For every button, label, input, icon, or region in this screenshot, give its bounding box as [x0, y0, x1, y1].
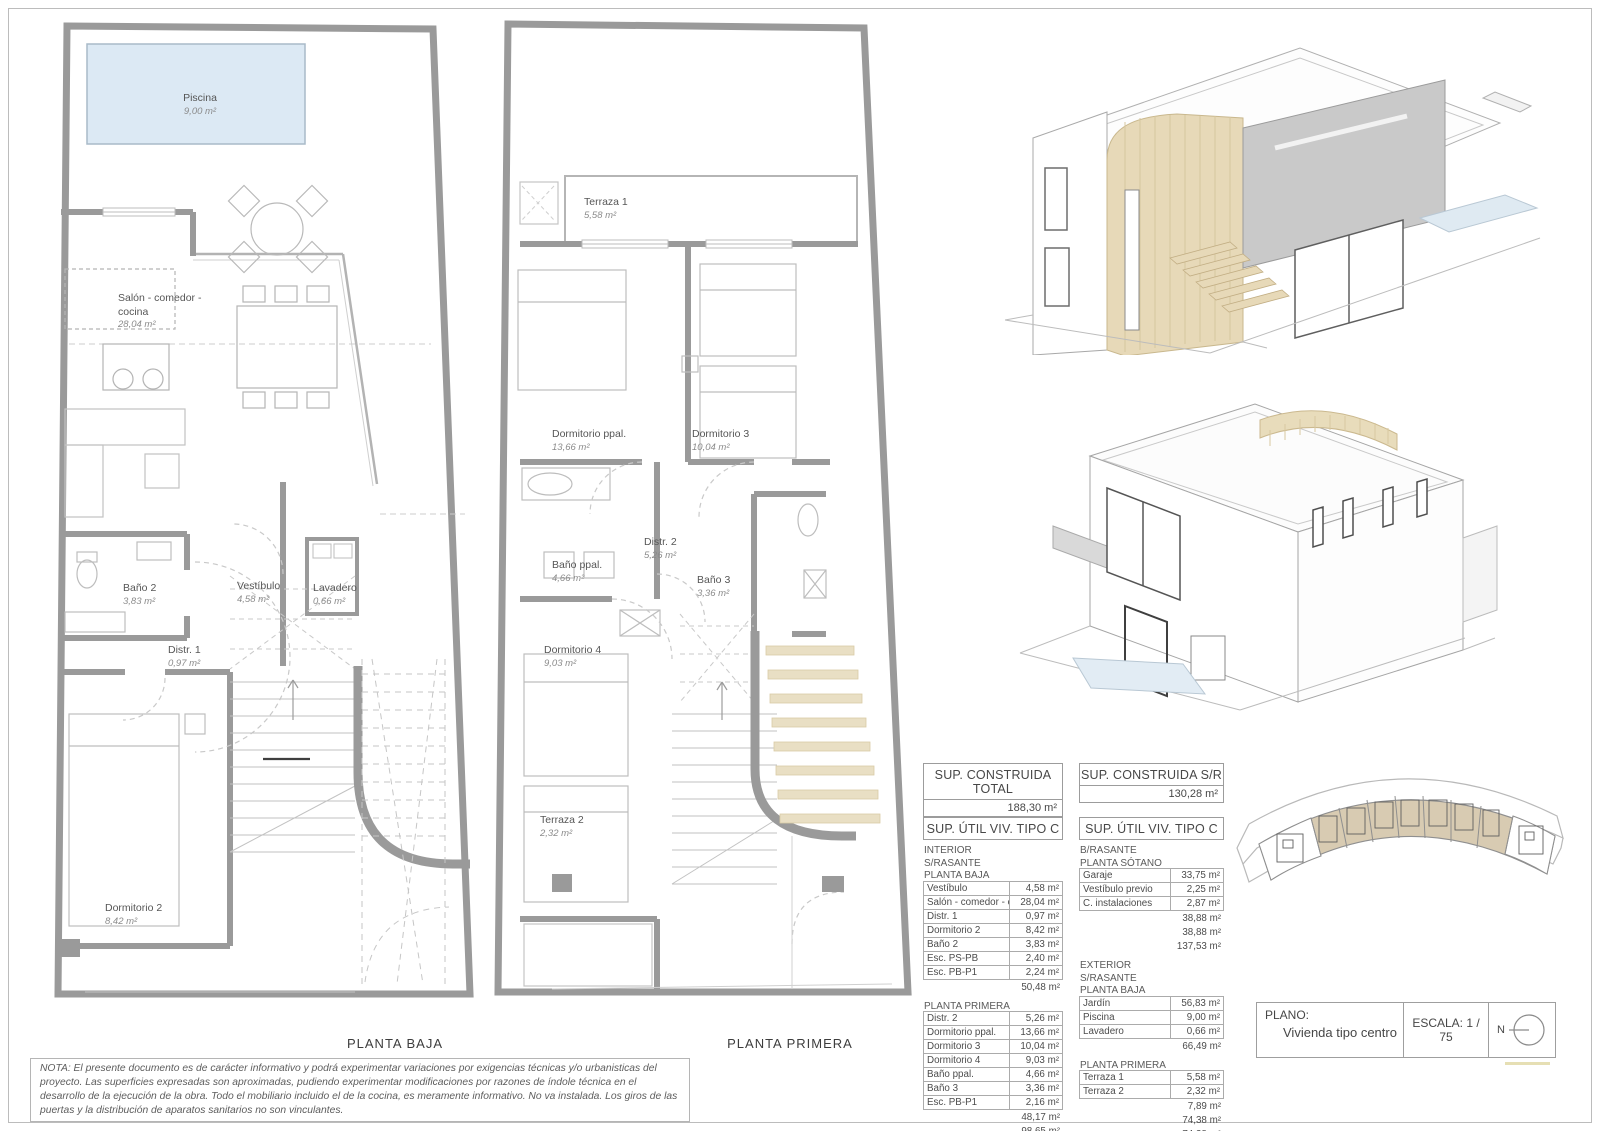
room-label-salon: Salón - comedor - cocina 28,04 m² — [118, 292, 201, 332]
table-row: Vestíbulo previo2,25 m² — [1079, 882, 1224, 897]
table-header: SUP. CONSTRUIDA S/R — [1079, 763, 1224, 786]
north-cell: N — [1489, 1003, 1555, 1057]
house-render-bottom — [995, 358, 1560, 723]
table-row: C. instalaciones2,87 m² — [1079, 896, 1224, 911]
table-row: Piscina9,00 m² — [1079, 1010, 1224, 1025]
room-label-dormitorio2: Dormitorio 2 8,42 m² — [105, 902, 162, 928]
section-total: 48,17 m² — [923, 1110, 1063, 1124]
section-title: B/RASANTE — [1079, 844, 1224, 857]
table-grand-total: 98,65 m² — [923, 1124, 1063, 1131]
section-title: S/RASANTE — [1079, 972, 1224, 985]
table-row: Baño ppal.4,66 m² — [923, 1067, 1063, 1082]
plano-cell: PLANO: Vivienda tipo centro — [1257, 1003, 1404, 1057]
section-title: INTERIOR — [923, 844, 1063, 857]
site-plan — [1235, 752, 1565, 972]
table-sup-construida-total: SUP. CONSTRUIDA TOTAL 188,30 m² — [923, 763, 1063, 817]
table-header: SUP. CONSTRUIDA TOTAL — [923, 763, 1063, 800]
table-row: Baño 23,83 m² — [923, 937, 1063, 952]
section-total: 74,38 m² — [1079, 1113, 1224, 1127]
room-label-dormppal: Dormitorio ppal. 13,66 m² — [552, 428, 626, 454]
section-total: 50,48 m² — [923, 980, 1063, 994]
table-sup-construida-sr: SUP. CONSTRUIDA S/R 130,28 m² — [1079, 763, 1224, 803]
planta-primera-plan: Terraza 1 5,58 m² Dormitorio ppal. 13,66… — [492, 14, 914, 1036]
section-total: 66,49 m² — [1079, 1039, 1224, 1053]
room-label-bano3: Baño 3 3,36 m² — [697, 574, 730, 600]
render-3d-bottom — [995, 358, 1560, 728]
escala-cell: ESCALA: 1 / 75 — [1404, 1003, 1489, 1057]
table-row: Esc. PS-PB2,40 m² — [923, 951, 1063, 966]
section-title: S/RASANTE — [923, 857, 1063, 870]
table-row: Distr. 25,26 m² — [923, 1011, 1063, 1026]
table-row: Lavadero0,66 m² — [1079, 1024, 1224, 1039]
planta-baja-plan: Piscina 9,00 m² Salón - comedor - cocina… — [25, 14, 485, 1036]
plano-label: PLANO: — [1265, 1008, 1309, 1022]
room-label-terraza1: Terraza 1 5,58 m² — [584, 196, 628, 222]
section-total: 38,88 m² — [1079, 925, 1224, 939]
house-render-top — [975, 20, 1560, 355]
table-row: Dormitorio 310,04 m² — [923, 1039, 1063, 1054]
table-row: Salón - comedor - cocina28,04 m² — [923, 895, 1063, 910]
room-label-lavadero: Lavadero 0,66 m² — [313, 582, 357, 608]
section-total: 38,88 m² — [1079, 911, 1224, 925]
planta-baja-drawing — [25, 14, 485, 1036]
caption-planta-baja: PLANTA BAJA — [300, 1036, 490, 1051]
table-value: 130,28 m² — [1079, 786, 1224, 803]
section-total: 7,89 m² — [1079, 1099, 1224, 1113]
table-row: Dormitorio 28,42 m² — [923, 923, 1063, 938]
room-label-piscina: Piscina 9,00 m² — [140, 92, 260, 118]
table-row: Dormitorio 49,03 m² — [923, 1053, 1063, 1068]
table-value: 188,30 m² — [923, 800, 1063, 817]
table-row: Esc. PB-P12,16 m² — [923, 1095, 1063, 1110]
north-compass-icon — [1507, 1010, 1547, 1050]
table-row: Terraza 22,32 m² — [1079, 1084, 1224, 1099]
room-label-vestibulo: Vestíbulo 4,58 m² — [237, 580, 280, 606]
planta-primera-drawing — [492, 14, 914, 1036]
table-grand-total: 74,38 m² — [1079, 1127, 1224, 1131]
section-total: 137,53 m² — [1079, 939, 1224, 953]
caption-planta-primera: PLANTA PRIMERA — [690, 1036, 890, 1051]
table-row: Vestíbulo4,58 m² — [923, 881, 1063, 896]
room-label-distr2: Distr. 2 5,26 m² — [644, 536, 677, 562]
table-row: Baño 33,36 m² — [923, 1081, 1063, 1096]
room-label-bano2: Baño 2 3,83 m² — [123, 582, 156, 608]
table-row: Terraza 15,58 m² — [1079, 1070, 1224, 1085]
table-row: Esc. PB-P12,24 m² — [923, 965, 1063, 980]
title-block-accent — [1505, 1062, 1550, 1065]
title-block: PLANO: Vivienda tipo centro ESCALA: 1 / … — [1256, 1002, 1556, 1058]
legal-note: NOTA: El presente documento es de caráct… — [30, 1058, 690, 1122]
room-label-dorm4: Dormitorio 4 9,03 m² — [544, 644, 601, 670]
table-row: Dormitorio ppal.13,66 m² — [923, 1025, 1063, 1040]
north-label: N — [1497, 1024, 1505, 1036]
table-header: SUP. ÚTIL VIV. TIPO C — [923, 817, 1063, 840]
table-row: Distr. 10,97 m² — [923, 909, 1063, 924]
table-header: SUP. ÚTIL VIV. TIPO C — [1079, 817, 1224, 840]
table-row: Jardín56,83 m² — [1079, 996, 1224, 1011]
room-label-terraza2: Terraza 2 2,32 m² — [540, 814, 584, 840]
room-label-distr1: Distr. 1 0,97 m² — [168, 644, 201, 670]
room-label-dorm3: Dormitorio 3 10,04 m² — [692, 428, 749, 454]
room-label-banoppal: Baño ppal. 4,66 m² — [552, 559, 602, 585]
render-3d-top — [975, 20, 1560, 360]
table-row: Garaje33,75 m² — [1079, 868, 1224, 883]
plan-sheet: Piscina 9,00 m² Salón - comedor - cocina… — [0, 0, 1600, 1131]
table-sup-util-right: SUP. ÚTIL VIV. TIPO C B/RASANTE PLANTA S… — [1079, 817, 1224, 1131]
table-sup-util-left: SUP. ÚTIL VIV. TIPO C INTERIOR S/RASANTE… — [923, 817, 1063, 1131]
section-title: EXTERIOR — [1079, 959, 1224, 972]
site-plan-drawing — [1235, 752, 1565, 967]
plano-value: Vivienda tipo centro — [1265, 1022, 1397, 1040]
